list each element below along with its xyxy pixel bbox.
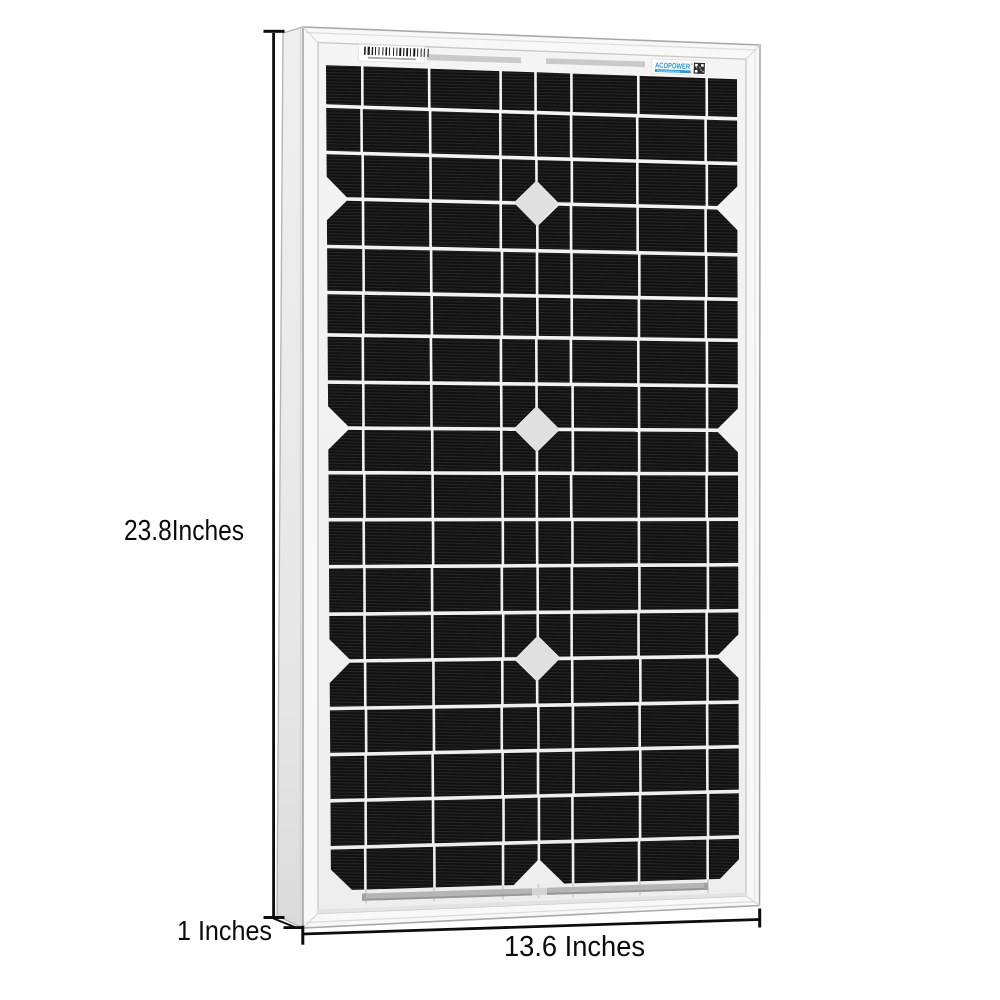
- svg-text:1 Inches: 1 Inches: [177, 915, 272, 946]
- svg-text:23.8Inches: 23.8Inches: [124, 515, 244, 547]
- svg-text:13.6 Inches: 13.6 Inches: [504, 931, 645, 963]
